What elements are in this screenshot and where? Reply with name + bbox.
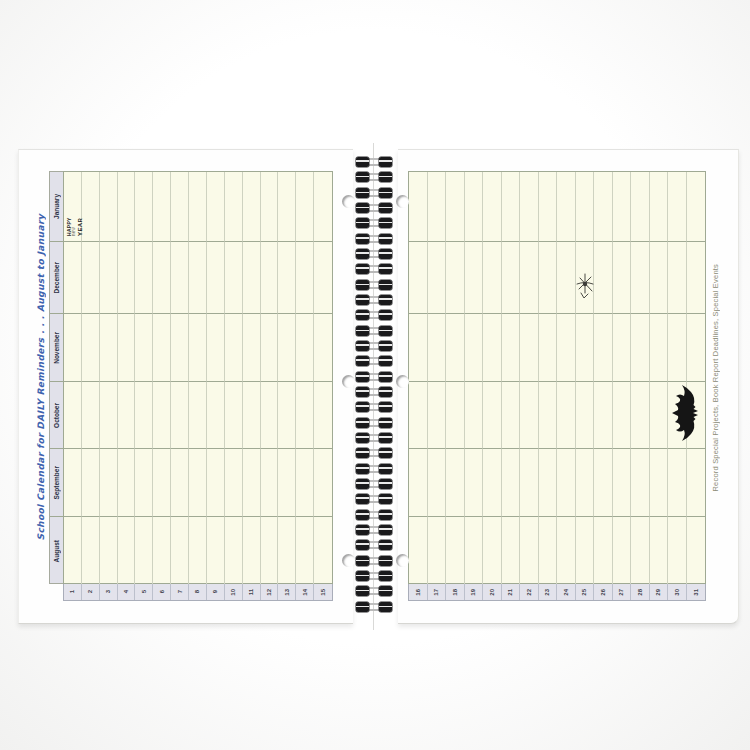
calendar-cell (153, 314, 171, 382)
calendar-cell (576, 449, 595, 517)
wire-coil (356, 264, 394, 274)
calendar-cell (243, 242, 261, 314)
calendar-cell (243, 314, 261, 382)
coil-clip-left (356, 602, 369, 612)
coil-clip-right (379, 172, 392, 182)
calendar-cell (296, 449, 314, 517)
calendar-cell (153, 382, 171, 449)
wire-coil (356, 356, 394, 366)
calendar-cell (261, 314, 279, 382)
wire-coil (356, 341, 394, 351)
calendar-cell (171, 314, 189, 382)
day-number: 30 (674, 589, 680, 596)
calendar-cell (135, 517, 153, 585)
day-number-cell: 25 (576, 584, 595, 600)
day-number-cell: 19 (465, 584, 484, 600)
day-number-cell: 14 (296, 584, 314, 600)
calendar-cell (225, 517, 243, 585)
coil-clip-right (379, 234, 392, 244)
calendar-cell (631, 449, 650, 517)
coil-clip-right (379, 310, 392, 320)
spiral-binding (352, 149, 398, 623)
calendar-cell (409, 314, 428, 382)
coil-clip-right (379, 372, 392, 382)
calendar-cell (428, 382, 447, 449)
happy-new-year-banner: HAPPY new YEAR (64, 194, 86, 236)
wire-coil (356, 372, 394, 382)
coil-clip-right (379, 402, 392, 412)
calendar-cell (118, 382, 136, 449)
calendar-cell (687, 314, 706, 382)
calendar-cell (594, 517, 613, 585)
calendar-cell (520, 242, 539, 314)
calendar-cell (668, 449, 687, 517)
calendar-cell (153, 449, 171, 517)
calendar-cell (64, 382, 82, 449)
day-number-cell: 2 (82, 584, 100, 600)
calendar-cell (118, 449, 136, 517)
calendar-cell (687, 172, 706, 242)
day-number-cell: 3 (100, 584, 118, 600)
calendar-cell (502, 314, 521, 382)
month-label-cell: November (50, 314, 63, 382)
coil-clip-left (356, 464, 369, 474)
wire-coil (356, 249, 394, 259)
calendar-cell (539, 517, 558, 585)
calendar-cell (64, 517, 82, 585)
calendar-cell (576, 172, 595, 242)
coil-clip-left (356, 586, 369, 596)
day-number: 10 (230, 589, 236, 596)
day-number: 16 (415, 589, 421, 596)
day-number: 25 (581, 589, 587, 596)
calendar-cell (520, 172, 539, 242)
day-number: 12 (266, 589, 272, 596)
calendar-cell (314, 172, 332, 242)
day-number-row-left: 123456789101112131415 (63, 584, 333, 601)
bat-silhouette (670, 384, 700, 442)
coil-clip-left (356, 387, 369, 397)
calendar-cell (171, 172, 189, 242)
punch-hole (396, 195, 409, 208)
calendar-cell (225, 242, 243, 314)
calendar-cell (278, 382, 296, 449)
calendar-cell (557, 172, 576, 242)
calendar-cell (64, 314, 82, 382)
coil-clip-right (379, 586, 392, 596)
calendar-cell (225, 172, 243, 242)
calendar-cell (650, 449, 669, 517)
calendar-cell (82, 449, 100, 517)
wire-coil (356, 172, 394, 182)
day-number-cell: 6 (153, 584, 171, 600)
calendar-cell (118, 314, 136, 382)
coil-clip-right (379, 418, 392, 428)
month-label: October (53, 403, 60, 428)
day-number-cell: 24 (557, 584, 576, 600)
calendar-cell (520, 314, 539, 382)
calendar-cell (207, 449, 225, 517)
calendar-cell (668, 517, 687, 585)
day-number-cell: 31 (687, 584, 706, 600)
month-label: September (53, 466, 60, 500)
day-number: 24 (563, 589, 569, 596)
wire-coil (356, 203, 394, 213)
day-number-cell: 17 (428, 584, 447, 600)
coil-clip-right (379, 494, 392, 504)
calendar-cell (557, 382, 576, 449)
wire-coil (356, 556, 394, 566)
calendar-cell (261, 517, 279, 585)
coil-clip-right (379, 525, 392, 535)
calendar-cell (687, 517, 706, 585)
calendar-cell (576, 517, 595, 585)
calendar-cell (64, 449, 82, 517)
coil-clip-left (356, 540, 369, 550)
calendar-cell (314, 449, 332, 517)
calendar-cell (576, 314, 595, 382)
calendar-cell (409, 172, 428, 242)
day-number: 2 (87, 590, 93, 593)
calendar-cell (650, 172, 669, 242)
wire-coil (356, 540, 394, 550)
calendar-cell (668, 242, 687, 314)
calendar-cell (261, 382, 279, 449)
day-number: 1 (69, 590, 75, 593)
coil-clip-left (356, 249, 369, 259)
calendar-cell (557, 449, 576, 517)
calendar-cell (446, 517, 465, 585)
calendar-cell (594, 449, 613, 517)
calendar-cell (314, 382, 332, 449)
day-number: 15 (320, 589, 326, 596)
day-number-cell: 18 (446, 584, 465, 600)
calendar-cell (650, 314, 669, 382)
calendar-cell (135, 382, 153, 449)
day-number-row-right: 16171819202122232425262728293031 (408, 584, 706, 601)
coil-clip-right (379, 203, 392, 213)
calendar-cell (465, 172, 484, 242)
calendar-cell (100, 449, 118, 517)
calendar-cell (483, 517, 502, 585)
calendar-cell (118, 517, 136, 585)
day-number-cell: 12 (261, 584, 279, 600)
coil-clip-right (379, 387, 392, 397)
calendar-cell (296, 314, 314, 382)
calendar-cell (520, 517, 539, 585)
calendar-cell (82, 517, 100, 585)
day-number-cell: 7 (171, 584, 189, 600)
day-number-cell: 29 (650, 584, 669, 600)
day-number-cell: 23 (539, 584, 558, 600)
calendar-cell (118, 242, 136, 314)
day-number: 11 (248, 589, 254, 595)
coil-clip-right (379, 433, 392, 443)
day-number-cell: 4 (118, 584, 136, 600)
calendar-cell (135, 242, 153, 314)
day-number-cell: 20 (483, 584, 502, 600)
calendar-grid-left (63, 171, 333, 584)
calendar-cell (100, 242, 118, 314)
calendar-cell (594, 382, 613, 449)
month-header-column: JanuaryDecemberNovemberOctoberSeptemberA… (49, 171, 63, 584)
calendar-cell (483, 172, 502, 242)
calendar-cell (171, 517, 189, 585)
wire-coil (356, 295, 394, 305)
punch-hole (396, 554, 409, 567)
calendar-cell (650, 242, 669, 314)
coil-clip-right (379, 448, 392, 458)
calendar-cell (539, 449, 558, 517)
wire-coil (356, 602, 394, 612)
holiday-scribble (571, 267, 599, 317)
day-number-cell: 28 (631, 584, 650, 600)
calendar-cell (189, 382, 207, 449)
calendar-cell (243, 517, 261, 585)
calendar-cell (296, 382, 314, 449)
calendar-cell (502, 172, 521, 242)
day-number: 18 (452, 589, 458, 596)
calendar-cell (171, 382, 189, 449)
wire-coil (356, 448, 394, 458)
calendar-cell (446, 449, 465, 517)
month-label-cell: October (50, 382, 63, 449)
coil-clip-left (356, 479, 369, 489)
calendar-cell (261, 449, 279, 517)
calendar-cell (278, 314, 296, 382)
day-number-cell: 27 (613, 584, 632, 600)
calendar-cell (409, 517, 428, 585)
wire-coil (356, 494, 394, 504)
calendar-cell (465, 449, 484, 517)
calendar-cell (100, 382, 118, 449)
coil-clip-left (356, 264, 369, 274)
coil-clip-left (356, 494, 369, 504)
calendar-cell (539, 314, 558, 382)
calendar-cell (64, 242, 82, 314)
wire-coil (356, 310, 394, 320)
calendar-cell (243, 449, 261, 517)
calendar-cell (314, 314, 332, 382)
month-label-cell: December (50, 242, 63, 314)
calendar-cell (465, 382, 484, 449)
day-number-cell: 26 (594, 584, 613, 600)
calendar-cell (82, 382, 100, 449)
calendar-cell (446, 314, 465, 382)
calendar-cell (153, 172, 171, 242)
calendar-cell (428, 172, 447, 242)
calendar-cell (189, 449, 207, 517)
calendar-cell (278, 449, 296, 517)
calendar-cell (296, 242, 314, 314)
coil-clip-left (356, 448, 369, 458)
wire-coil (356, 510, 394, 520)
calendar-cell (594, 314, 613, 382)
calendar-cell (296, 172, 314, 242)
calendar-cell (539, 172, 558, 242)
calendar-cell (502, 242, 521, 314)
coil-clip-left (356, 556, 369, 566)
day-number-cell: 16 (409, 584, 428, 600)
calendar-cell (650, 517, 669, 585)
wire-coil (356, 280, 394, 290)
coil-clip-right (379, 571, 392, 581)
day-number: 20 (489, 589, 495, 596)
calendar-cell (502, 382, 521, 449)
coil-clip-left (356, 341, 369, 351)
calendar-cell (465, 517, 484, 585)
calendar-cell (446, 242, 465, 314)
calendar-cell (557, 517, 576, 585)
day-number: 31 (693, 589, 699, 596)
wire-coil (356, 157, 394, 167)
calendar-cell (189, 172, 207, 242)
coil-clip-left (356, 295, 369, 305)
calendar-cell (428, 517, 447, 585)
coil-clip-left (356, 372, 369, 382)
calendar-cell (314, 517, 332, 585)
day-number-cell: 30 (668, 584, 687, 600)
calendar-cell (243, 382, 261, 449)
coil-clip-right (379, 464, 392, 474)
day-number-cell: 1 (64, 584, 82, 600)
wire-coil (356, 571, 394, 581)
day-number-cell: 5 (135, 584, 153, 600)
calendar-cell (409, 242, 428, 314)
calendar-cell (118, 172, 136, 242)
calendar-cell (207, 382, 225, 449)
wire-coil (356, 402, 394, 412)
calendar-cell (613, 242, 632, 314)
wire-coil (356, 326, 394, 336)
calendar-cell (189, 242, 207, 314)
christmas-clipart-icon (571, 267, 599, 317)
calendar-cell (650, 382, 669, 449)
page-title-wrap: School Calendar for DAILY Reminders . . … (31, 171, 51, 584)
wire-coil (356, 525, 394, 535)
coil-clip-right (379, 479, 392, 489)
calendar-cell (428, 314, 447, 382)
day-number: 29 (655, 589, 661, 596)
calendar-cell (207, 242, 225, 314)
day-number-cell: 10 (225, 584, 243, 600)
coil-clip-left (356, 510, 369, 520)
coil-clip-right (379, 295, 392, 305)
wire-coil (356, 433, 394, 443)
calendar-cell (207, 314, 225, 382)
calendar-cell (189, 517, 207, 585)
calendar-cell (668, 314, 687, 382)
calendar-cell (557, 314, 576, 382)
coil-clip-left (356, 157, 369, 167)
calendar-cell (171, 242, 189, 314)
coil-clip-right (379, 326, 392, 336)
wire-coil (356, 387, 394, 397)
day-number-cell: 15 (314, 584, 332, 600)
calendar-cell (687, 449, 706, 517)
calendar-cell (613, 172, 632, 242)
calendar-cell (465, 242, 484, 314)
day-number-cell: 22 (520, 584, 539, 600)
coil-clip-right (379, 341, 392, 351)
calendar-cell (502, 517, 521, 585)
calendar-cell (520, 382, 539, 449)
calendar-cell (82, 242, 100, 314)
calendar-cell (409, 449, 428, 517)
day-number-cell: 8 (189, 584, 207, 600)
calendar-cell (314, 242, 332, 314)
coil-clip-right (379, 510, 392, 520)
coil-clip-left (356, 218, 369, 228)
day-number-cell: 9 (207, 584, 225, 600)
calendar-cell (409, 382, 428, 449)
day-number: 9 (212, 590, 218, 593)
wire-coil (356, 234, 394, 244)
calendar-cell (225, 382, 243, 449)
calendar-cell (189, 314, 207, 382)
calendar-grid-right (408, 171, 706, 584)
month-label: December (53, 262, 60, 293)
halloween-bat-icon (670, 384, 700, 442)
day-number: 21 (507, 589, 513, 596)
coil-clip-right (379, 218, 392, 228)
right-page: 16171819202122232425262728293031 Record … (398, 149, 739, 624)
calendar-cell (687, 242, 706, 314)
wire-coil (356, 464, 394, 474)
calendar-cell (225, 314, 243, 382)
day-number: 4 (123, 590, 129, 593)
month-label: November (53, 332, 60, 364)
coil-clip-right (379, 602, 392, 612)
day-number-cell: 21 (502, 584, 521, 600)
bat-rotated (670, 384, 700, 442)
calendar-cell (613, 382, 632, 449)
coil-clip-left (356, 188, 369, 198)
month-label-cell: January (50, 172, 63, 242)
coil-clip-left (356, 280, 369, 290)
calendar-cell (613, 314, 632, 382)
calendar-cell (613, 449, 632, 517)
calendar-cell (135, 172, 153, 242)
calendar-cell (261, 172, 279, 242)
calendar-cell (631, 314, 650, 382)
calendar-cell (631, 242, 650, 314)
day-number: 17 (433, 589, 439, 596)
calendar-cell (153, 242, 171, 314)
wire-coil (356, 418, 394, 428)
calendar-cell (261, 242, 279, 314)
coil-clip-right (379, 249, 392, 259)
coil-clip-left (356, 356, 369, 366)
calendar-cell (171, 449, 189, 517)
day-number: 6 (159, 590, 165, 593)
calendar-cell (153, 517, 171, 585)
day-number: 23 (544, 589, 550, 596)
calendar-cell (135, 314, 153, 382)
coil-clip-right (379, 157, 392, 167)
calendar-cell (520, 449, 539, 517)
day-number: 26 (600, 589, 606, 596)
calendar-cell (668, 172, 687, 242)
calendar-cell (483, 449, 502, 517)
calendar-cell (207, 517, 225, 585)
day-number: 8 (194, 590, 200, 593)
coil-clip-left (356, 203, 369, 213)
calendar-cell (278, 517, 296, 585)
day-number: 27 (618, 589, 624, 596)
calendar-cell (243, 172, 261, 242)
calendar-cell (296, 517, 314, 585)
